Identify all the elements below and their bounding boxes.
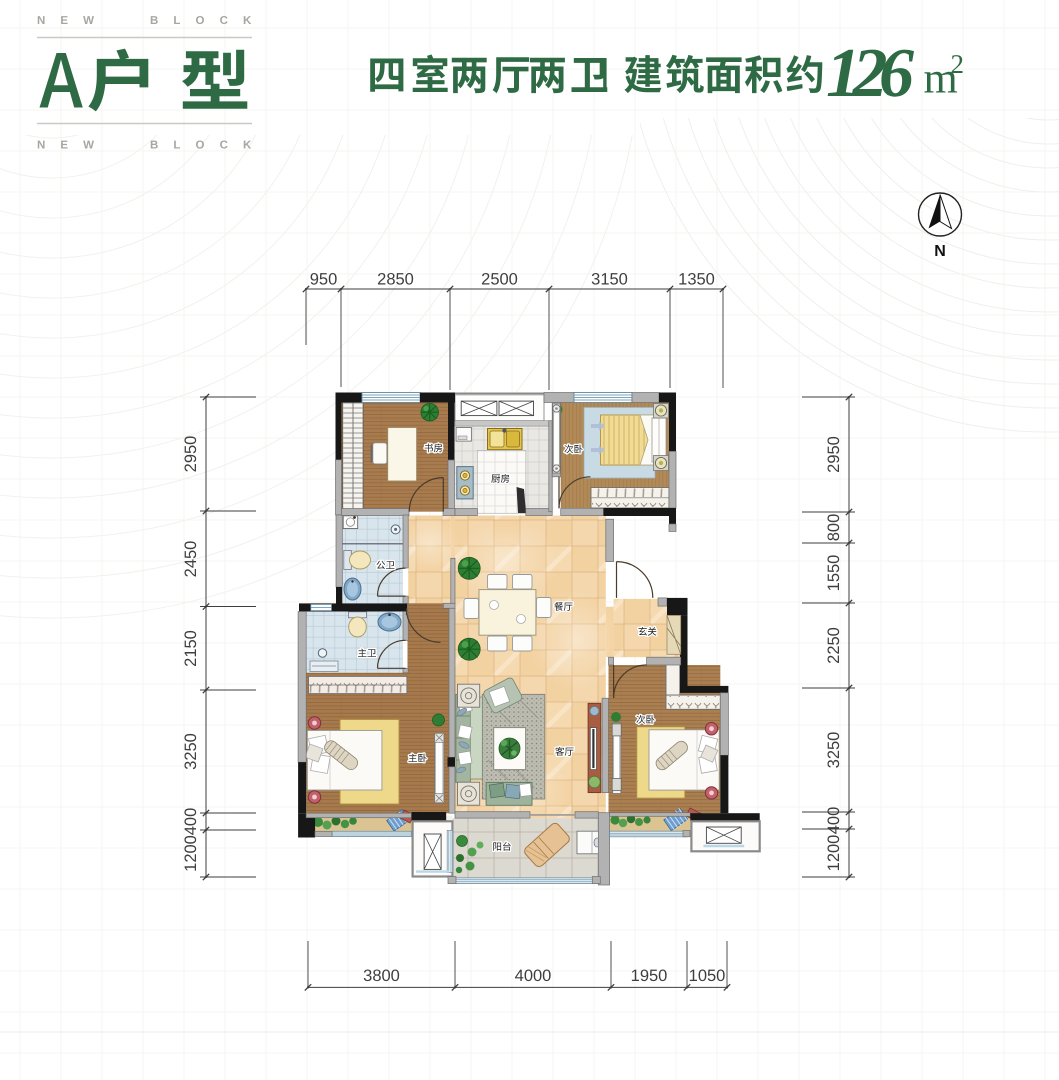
svg-text:950: 950 (310, 271, 338, 289)
svg-text:3250: 3250 (182, 733, 200, 770)
svg-text:BLOCK: BLOCK (150, 140, 266, 152)
svg-text:2: 2 (951, 49, 965, 79)
svg-text:1950: 1950 (631, 967, 668, 985)
svg-text:1050: 1050 (689, 967, 726, 985)
svg-text:400: 400 (825, 807, 843, 835)
svg-text:2250: 2250 (825, 627, 843, 664)
svg-text:BLOCK: BLOCK (150, 15, 266, 27)
svg-text:2950: 2950 (182, 436, 200, 473)
svg-text:2950: 2950 (825, 436, 843, 473)
svg-text:126: 126 (826, 35, 914, 112)
svg-text:1200: 1200 (825, 835, 843, 872)
svg-text:NEW: NEW (37, 15, 109, 27)
svg-text:2850: 2850 (377, 271, 414, 289)
svg-text:400: 400 (182, 808, 200, 836)
svg-text:3150: 3150 (591, 271, 628, 289)
svg-text:1550: 1550 (825, 555, 843, 592)
svg-text:1350: 1350 (678, 271, 715, 289)
svg-text:3250: 3250 (825, 732, 843, 769)
svg-text:NEW: NEW (37, 140, 109, 152)
svg-text:2500: 2500 (481, 271, 518, 289)
svg-text:3800: 3800 (363, 967, 400, 985)
svg-text:4000: 4000 (515, 967, 552, 985)
svg-text:1200: 1200 (182, 835, 200, 872)
svg-text:800: 800 (825, 514, 843, 542)
svg-text:2150: 2150 (182, 630, 200, 667)
svg-text:N: N (934, 243, 946, 260)
svg-text:2450: 2450 (182, 541, 200, 578)
